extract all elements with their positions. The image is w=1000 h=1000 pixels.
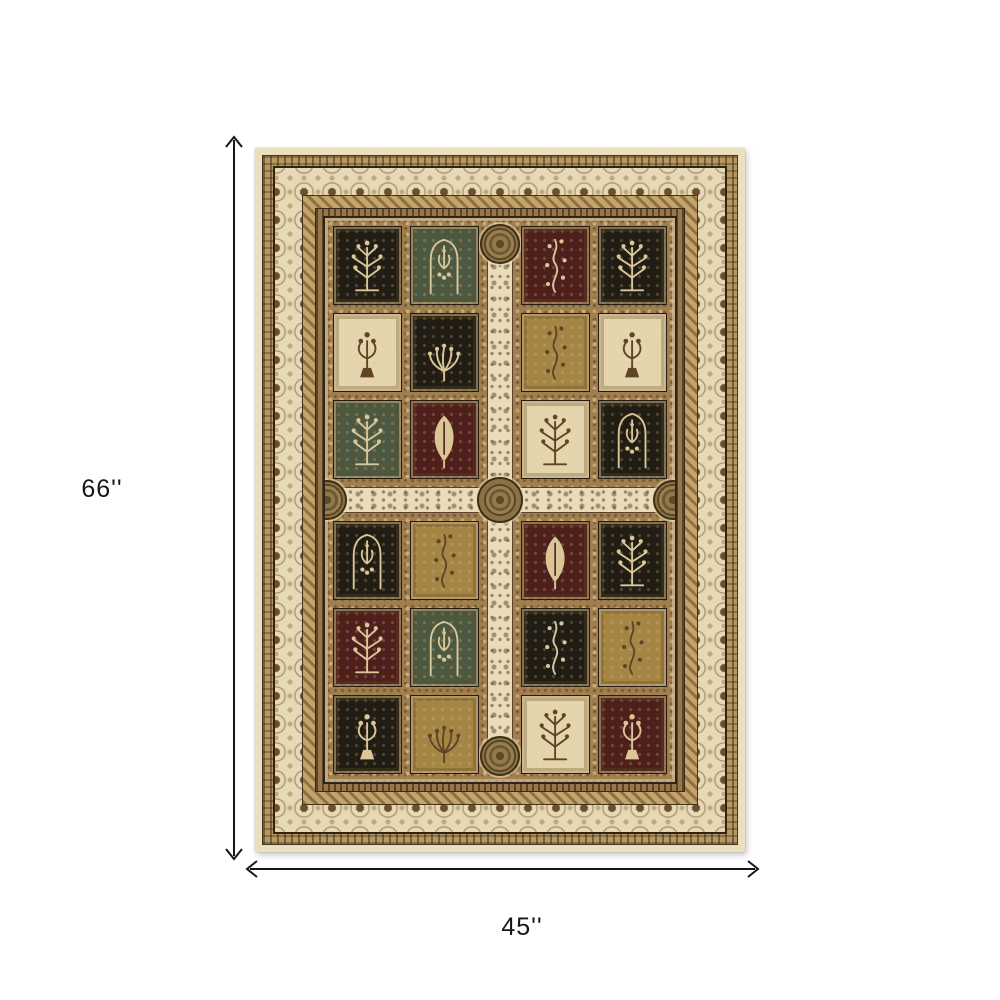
rug-field xyxy=(323,216,677,784)
rug-panel-green-tree xyxy=(333,400,402,479)
panel-motif-arch xyxy=(608,406,656,472)
band-medallion-right xyxy=(653,480,677,520)
rug-panel-green-arch xyxy=(410,608,479,687)
panel-motif-floral xyxy=(608,614,656,680)
panel-motif-floral xyxy=(420,527,468,593)
panel-motif-tree xyxy=(608,527,656,593)
rug-panel-black-floral xyxy=(521,608,590,687)
rug-panel-green-arch xyxy=(410,226,479,305)
rug-panel-ivory-tree xyxy=(521,400,590,479)
rug-image xyxy=(255,148,745,852)
rug-panel-black-tree xyxy=(598,521,667,600)
panel-motif-vase xyxy=(608,701,656,767)
panel-motif-arch xyxy=(420,232,468,298)
product-dimension-page: { "dimensions": { "height_label": "66''"… xyxy=(0,0,1000,1000)
rug-guard-band-inner xyxy=(302,195,698,805)
width-dimension-arrow xyxy=(242,856,762,882)
panel-motif-floral xyxy=(531,232,579,298)
rug-panel-tan-floral xyxy=(598,608,667,687)
panel-motif-arch xyxy=(343,527,391,593)
panel-motif-vase xyxy=(343,319,391,385)
panel-motif-tree xyxy=(531,406,579,472)
panel-motif-tree xyxy=(531,701,579,767)
panel-motif-vase xyxy=(343,701,391,767)
rug-panel-black-arch xyxy=(598,400,667,479)
height-dimension-arrow xyxy=(221,132,247,864)
rug-panel-black-tree xyxy=(333,226,402,305)
rug-panel-burgundy-leaf xyxy=(521,521,590,600)
width-dimension-label: 45'' xyxy=(482,913,562,942)
rug-panel-black-vase xyxy=(333,695,402,774)
height-dimension-label: 66'' xyxy=(64,475,140,504)
band-medallion-bottom xyxy=(480,736,520,776)
panel-motif-arch xyxy=(420,614,468,680)
rug-panel-burgundy-leaf xyxy=(410,400,479,479)
rug-panel-burgundy-tree xyxy=(333,608,402,687)
panel-motif-floral xyxy=(531,319,579,385)
rug-panel-tan-floral xyxy=(410,521,479,600)
band-medallion-top xyxy=(480,224,520,264)
rug-panel-tan-floral xyxy=(521,313,590,392)
rug-panel-ivory-vase xyxy=(333,313,402,392)
rug-outer-edge xyxy=(255,148,745,852)
rug-panel-ivory-tree xyxy=(521,695,590,774)
panel-motif-tree xyxy=(343,406,391,472)
panel-motif-tree xyxy=(608,232,656,298)
rug-panel-tan-palm xyxy=(410,695,479,774)
rug-panel-burgundy-vase xyxy=(598,695,667,774)
panel-motif-floral xyxy=(531,614,579,680)
rug-panel-black-tree xyxy=(598,226,667,305)
panel-motif-tree xyxy=(343,232,391,298)
panel-motif-leaf xyxy=(531,527,579,593)
panel-motif-palm xyxy=(420,319,468,385)
panel-motif-leaf xyxy=(420,406,468,472)
panel-motif-tree xyxy=(343,614,391,680)
band-medallion-left xyxy=(323,480,347,520)
rug-minor-band xyxy=(315,208,685,792)
panel-motif-vase xyxy=(608,319,656,385)
rug-main-border xyxy=(273,166,727,834)
rug-panel-burgundy-floral xyxy=(521,226,590,305)
band-medallion-center xyxy=(477,477,523,523)
rug-guard-band-outer xyxy=(262,155,738,845)
panel-motif-palm xyxy=(420,701,468,767)
rug-panel-black-palm xyxy=(410,313,479,392)
rug-panel-ivory-vase xyxy=(598,313,667,392)
rug-panel-black-arch xyxy=(333,521,402,600)
